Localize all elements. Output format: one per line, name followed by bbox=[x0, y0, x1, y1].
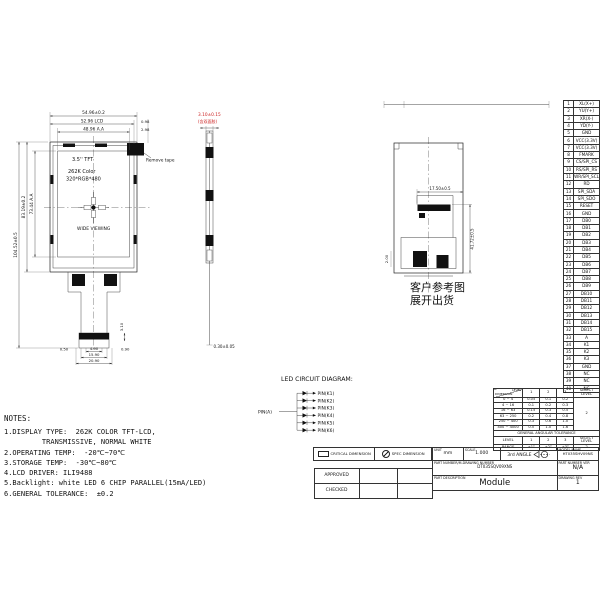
pin-number: 13 bbox=[564, 188, 574, 195]
pin-row: 22DB5 bbox=[564, 254, 600, 261]
viewing-direction-label: WIDE VIEWING bbox=[77, 226, 111, 232]
model-name-cell: MODEL NAME HT035SHV09NS bbox=[557, 448, 598, 461]
spec-dimension-cell: SPEC DIMENSION bbox=[375, 448, 432, 461]
unit-cell: UNIT mm bbox=[433, 448, 464, 461]
pin-number: 25 bbox=[564, 276, 574, 283]
back-view: 17.50±0.5 41.72±0.5 2.00 客户参考图 展开出货 bbox=[384, 101, 549, 307]
approval-block: CRITICAL DIMENSION SPEC DIMENSION APPROV… bbox=[313, 447, 432, 476]
pin-signal-name: SPI_SDA bbox=[574, 188, 600, 195]
pin-number: 15 bbox=[564, 203, 574, 210]
pin-row: 13SPI_SDA bbox=[564, 188, 600, 195]
pin-number: 14 bbox=[564, 195, 574, 202]
remove-tape-label: Remove tape bbox=[146, 158, 175, 164]
angular-level-2: 2 bbox=[540, 436, 557, 445]
angular-level-3: 3 bbox=[557, 436, 574, 445]
pin-number: 32 bbox=[564, 327, 574, 334]
led-cathode-label: PIN(K1) bbox=[318, 391, 335, 397]
pin-number: 34 bbox=[564, 341, 574, 348]
spec-dimension-label: SPEC DIMENSION bbox=[392, 451, 425, 456]
pin-signal-name: DB5 bbox=[574, 254, 600, 261]
led-cathode-label: PIN(K2) bbox=[318, 398, 335, 404]
pin-row: 14SPI_SDO bbox=[564, 195, 600, 202]
dim-height-total: 104.52±0.5 bbox=[13, 232, 19, 258]
pin-number: 23 bbox=[564, 261, 574, 268]
pin-signal-name: XR(X-) bbox=[574, 115, 600, 122]
pin-signal-name: NC bbox=[574, 378, 600, 385]
pin-row: 37GND bbox=[564, 363, 600, 370]
pin-number: 9 bbox=[564, 159, 574, 166]
dim-fpc-thickness: 0.30±0.05 bbox=[214, 344, 236, 349]
pin-number: 10 bbox=[564, 166, 574, 173]
projection-label: 3rd ANGLE bbox=[507, 453, 531, 458]
model-name-label: MODEL NAME bbox=[559, 449, 582, 452]
dim-fpc-w1: 4.90 bbox=[90, 346, 99, 351]
pin-row: 19DB2 bbox=[564, 232, 600, 239]
pin-number: 5 bbox=[564, 130, 574, 137]
dim-thickness: 3.10±0.15 bbox=[198, 112, 221, 118]
level-header-1: 1 bbox=[523, 389, 540, 398]
pin-signal-name: RD bbox=[574, 181, 600, 188]
pin-number: 29 bbox=[564, 305, 574, 312]
pin-row: 18DB1 bbox=[564, 225, 600, 232]
pin-row: 15RESET bbox=[564, 203, 600, 210]
pin-row: 2YU(Y+) bbox=[564, 108, 600, 115]
pin-signal-name: A bbox=[574, 334, 600, 341]
led-cathode-label: PIN(K4) bbox=[318, 413, 335, 419]
center-mark-icon bbox=[78, 192, 109, 223]
led-cathode-label: PIN(K3) bbox=[318, 406, 335, 412]
pin-number: 7 bbox=[564, 144, 574, 151]
scale-label: SCALE bbox=[465, 449, 476, 452]
note-line: 5.Backlight: white LED 6 CHIP PARALLEL(1… bbox=[4, 478, 206, 488]
dim-height-aa: 73.44 A.A bbox=[29, 194, 35, 215]
tolerance-corner-cell: LEVEL DIMENSION bbox=[494, 389, 523, 398]
pin-signal-name: CS/SPI_CS bbox=[574, 159, 600, 166]
pin-number: 28 bbox=[564, 298, 574, 305]
pin-row: 24DB7 bbox=[564, 268, 600, 275]
checked-date-cell[interactable] bbox=[397, 484, 432, 499]
pin-table: 1XL(X+)2YU(Y+)3XR(X-)4YD(Y-)5GND6VCC(3.3… bbox=[563, 100, 600, 393]
approved-label: APPROVED bbox=[314, 469, 359, 484]
pin-number: 12 bbox=[564, 181, 574, 188]
approved-date-cell[interactable] bbox=[397, 469, 432, 484]
pin-signal-name: YU(Y+) bbox=[574, 108, 600, 115]
pin-row: 29DB12 bbox=[564, 305, 600, 312]
pin-row: 23DB6 bbox=[564, 261, 600, 268]
unit-label: UNIT bbox=[434, 449, 442, 452]
pin-number: 16 bbox=[564, 210, 574, 217]
pin-row: 5GND bbox=[564, 130, 600, 137]
pin-signal-name: DB10 bbox=[574, 290, 600, 297]
pin-signal-name: DB14 bbox=[574, 319, 600, 326]
part-number-label: PART NUMBER/M-DRAWING NUMBER bbox=[434, 462, 494, 465]
pin-number: 35 bbox=[564, 349, 574, 356]
pin-number: 4 bbox=[564, 122, 574, 129]
dim-width-outline: 54.96±0.2 bbox=[82, 110, 105, 116]
pin-row: 7VCC(3.3V) bbox=[564, 144, 600, 151]
pin-signal-name: DB12 bbox=[574, 305, 600, 312]
pin-signal-name: DB15 bbox=[574, 327, 600, 334]
pin-number: 31 bbox=[564, 319, 574, 326]
pin-number: 2 bbox=[564, 108, 574, 115]
pin-signal-name: RESET bbox=[574, 203, 600, 210]
pin-number: 33 bbox=[564, 334, 574, 341]
pin-row: 38NC bbox=[564, 370, 600, 377]
pin-signal-name: NC bbox=[574, 370, 600, 377]
pin-signal-name: SPI_SDO bbox=[574, 195, 600, 202]
pin-signal-name: FMARK bbox=[574, 152, 600, 159]
dim-back-height: 41.72±0.5 bbox=[470, 228, 475, 250]
pin-signal-name: DB13 bbox=[574, 312, 600, 319]
select-level-label: SELECT LEVEL bbox=[574, 389, 600, 398]
angular-select-label: SELECT LEVEL bbox=[574, 436, 600, 445]
pin-row: 9CS/SPI_CS bbox=[564, 159, 600, 166]
pin-number: 20 bbox=[564, 239, 574, 246]
pin-signal-name: VCC(3.3V) bbox=[574, 144, 600, 151]
part-description-value: Module bbox=[479, 478, 510, 488]
pin-row: 39NC bbox=[564, 378, 600, 385]
pin-signal-name: GND bbox=[574, 130, 600, 137]
dim-back-small: 2.00 bbox=[384, 254, 389, 263]
panel-color-label: 262K Color bbox=[68, 169, 96, 175]
selected-level-value: 2 bbox=[574, 397, 600, 431]
pin-row: 17DB0 bbox=[564, 217, 600, 224]
part-ver-cell: PART NUMBER VER N/A bbox=[557, 461, 598, 476]
pin-signal-name: DB7 bbox=[574, 268, 600, 275]
part-ver-label: PART NUMBER VER bbox=[559, 462, 590, 465]
projection-cell: 3rd ANGLE bbox=[500, 448, 557, 461]
pin-signal-name: YD(Y-) bbox=[574, 122, 600, 129]
pin-row: 26DB9 bbox=[564, 283, 600, 290]
pin-row: 28DB11 bbox=[564, 298, 600, 305]
pin-signal-name: DB3 bbox=[574, 239, 600, 246]
pin-row: 25DB8 bbox=[564, 276, 600, 283]
drawing-canvas: Remove tape 3.5'' TFT 262K Color 320*RGB… bbox=[0, 0, 600, 600]
pin-number: 37 bbox=[564, 363, 574, 370]
pin-row: 33A bbox=[564, 334, 600, 341]
note-line: 6.GENERAL TOLERANCE: ±0.2 bbox=[4, 489, 206, 499]
pin-row: 20DB3 bbox=[564, 239, 600, 246]
note-line: 2.OPERATING TEMP: -20℃~70℃ bbox=[4, 448, 206, 458]
led-anode-label: PIN(A) bbox=[258, 410, 272, 416]
customer-reference-caption-1: 客户参考图 bbox=[410, 280, 465, 294]
dim-fpc-left: 0.50 bbox=[60, 347, 69, 352]
dim-fpc-w3: 20.90 bbox=[89, 358, 100, 363]
critical-dimension-label: CRITICAL DIMENSION bbox=[331, 451, 371, 456]
pin-signal-name: DB11 bbox=[574, 298, 600, 305]
dim-fpc-right: 0.90 bbox=[121, 347, 130, 352]
third-angle-projection-icon bbox=[533, 450, 550, 459]
dim-thickness-note: (含双面胶) bbox=[198, 118, 218, 124]
dim-connector: 17.50±0.5 bbox=[429, 186, 451, 191]
pin-number: 18 bbox=[564, 225, 574, 232]
pin-row: 6VCC(3.3V) bbox=[564, 137, 600, 144]
level-header-3: 3 bbox=[557, 389, 574, 398]
corner-level-label: LEVEL bbox=[512, 389, 521, 392]
pin-signal-name: DB4 bbox=[574, 246, 600, 253]
pin-row: 3XR(X-) bbox=[564, 115, 600, 122]
pin-row: 30DB13 bbox=[564, 312, 600, 319]
angular-level-label: LEVEL bbox=[494, 436, 523, 445]
dim-fpc-w2: 15.90 bbox=[89, 352, 100, 357]
pin-row: 27DB10 bbox=[564, 290, 600, 297]
title-block: UNIT mm SCALE 1.000 3rd ANGLE MODEL bbox=[432, 447, 599, 491]
dim-right-1: 0.98 bbox=[141, 119, 150, 124]
pin-number: 8 bbox=[564, 152, 574, 159]
pin-signal-name: DB2 bbox=[574, 232, 600, 239]
model-name-value: HT035SHV09NS bbox=[563, 451, 593, 456]
angular-level-1: 1 bbox=[523, 436, 540, 445]
dim-height-outline: 83.19±0.2 bbox=[21, 195, 27, 218]
pin-number: 27 bbox=[564, 290, 574, 297]
pin-number: 36 bbox=[564, 356, 574, 363]
drawing-rev-cell: DRAWING REV 1 bbox=[557, 476, 598, 491]
pin-signal-name: K2 bbox=[574, 349, 600, 356]
note-line: TRANSMISSIVE, NORMAL WHITE bbox=[4, 437, 206, 447]
pin-number: 22 bbox=[564, 254, 574, 261]
pin-number: 17 bbox=[564, 217, 574, 224]
pin-table-body: 1XL(X+)2YU(Y+)3XR(X-)4YD(Y-)5GND6VCC(3.3… bbox=[564, 101, 600, 393]
pin-row: 31DB14 bbox=[564, 319, 600, 326]
drawing-rev-label: DRAWING REV bbox=[559, 477, 583, 480]
pin-signal-name: GND bbox=[574, 363, 600, 370]
note-line: 3.STORAGE TEMP: -30℃~80℃ bbox=[4, 458, 206, 468]
pin-row: 1XL(X+) bbox=[564, 101, 600, 108]
pin-signal-name: DB9 bbox=[574, 283, 600, 290]
pin-signal-name: VCC(3.3V) bbox=[574, 137, 600, 144]
unit-value: mm bbox=[444, 451, 453, 456]
part-description-cell: PART DESCRIPTION Module bbox=[433, 476, 558, 491]
pin-number: 39 bbox=[564, 378, 574, 385]
note-line: 4.LCD DRIVER: ILI9488 bbox=[4, 468, 206, 478]
level-header-2: 2 bbox=[540, 389, 557, 398]
pin-number: 21 bbox=[564, 246, 574, 253]
led-cathode-label: PIN(K5) bbox=[318, 421, 335, 427]
note-line: 1.DISPLAY TYPE: 262K COLOR TFT-LCD, bbox=[4, 427, 206, 437]
pin-row: 11WR/SPI_SCL bbox=[564, 173, 600, 180]
dim-right-2: 2.98 bbox=[141, 127, 150, 132]
part-description-label: PART DESCRIPTION bbox=[434, 477, 465, 480]
pin-row: 34K1 bbox=[564, 341, 600, 348]
checked-signature-cell[interactable] bbox=[359, 484, 397, 499]
customer-reference-caption-2: 展开出货 bbox=[410, 293, 454, 307]
pin-number: 30 bbox=[564, 312, 574, 319]
critical-dimension-icon bbox=[318, 451, 329, 457]
led-diagram-title: LED CIRCUIT DIAGRAM: bbox=[281, 376, 353, 383]
pin-number: 38 bbox=[564, 370, 574, 377]
pin-signal-name: DB1 bbox=[574, 225, 600, 232]
dim-width-aa: 48.96 A.A bbox=[83, 127, 104, 133]
pin-signal-name: K3 bbox=[574, 356, 600, 363]
pin-row: 4YD(Y-) bbox=[564, 122, 600, 129]
corner-dimension-label: DIMENSION bbox=[495, 393, 512, 396]
pin-number: 26 bbox=[564, 283, 574, 290]
pin-signal-name: DB0 bbox=[574, 217, 600, 224]
pin-row: 12RD bbox=[564, 181, 600, 188]
pin-number: 6 bbox=[564, 137, 574, 144]
pin-row: 21DB4 bbox=[564, 246, 600, 253]
pin-row: 32DB15 bbox=[564, 327, 600, 334]
pin-row: 16GND bbox=[564, 210, 600, 217]
panel-size-label: 3.5'' TFT bbox=[72, 157, 94, 163]
drawing-rev-value: 1 bbox=[576, 479, 580, 486]
notes-block: NOTES: 1.DISPLAY TYPE: 262K COLOR TFT-LC… bbox=[4, 414, 206, 499]
pin-number: 11 bbox=[564, 173, 574, 180]
pin-signal-name: RS/SPI_RS bbox=[574, 166, 600, 173]
front-view: Remove tape 3.5'' TFT 262K Color 320*RGB… bbox=[13, 110, 175, 365]
pin-signal-name: K1 bbox=[574, 341, 600, 348]
part-number-value: DT035SQV09XNS bbox=[477, 464, 512, 469]
pin-row: 10RS/SPI_RS bbox=[564, 166, 600, 173]
approved-signature-cell[interactable] bbox=[359, 469, 397, 484]
part-ver-value: N/A bbox=[572, 464, 583, 471]
pin-signal-name: DB6 bbox=[574, 261, 600, 268]
pin-row: 35K2 bbox=[564, 349, 600, 356]
pin-signal-name: WR/SPI_SCL bbox=[574, 173, 600, 180]
led-circuit-diagram: LED CIRCUIT DIAGRAM: PIN(A) PIN(K1)PIN(K… bbox=[258, 376, 353, 434]
dim-width-lcd: 52.96 LCD bbox=[81, 119, 104, 125]
notes-lines: 1.DISPLAY TYPE: 262K COLOR TFT-LCD, TRAN… bbox=[4, 427, 206, 499]
pin-number: 1 bbox=[564, 101, 574, 108]
scale-cell: SCALE 1.000 bbox=[463, 448, 500, 461]
pin-number: 19 bbox=[564, 232, 574, 239]
pin-signal-name: XL(X+) bbox=[574, 101, 600, 108]
critical-dimension-cell: CRITICAL DIMENSION bbox=[314, 448, 375, 461]
pin-signal-name: DB8 bbox=[574, 276, 600, 283]
dim-fpc-h: 3.10 bbox=[119, 322, 124, 331]
tolerance-table: LEVEL DIMENSION 1 2 3 SELECT LEVEL 0 ~ 4… bbox=[493, 388, 600, 451]
led-cathode-label: PIN(K6) bbox=[318, 428, 335, 434]
pin-row: 36K3 bbox=[564, 356, 600, 363]
drawing-sheet: Remove tape 3.5'' TFT 262K Color 320*RGB… bbox=[0, 0, 600, 600]
pin-number: 24 bbox=[564, 268, 574, 275]
part-number-cell: PART NUMBER/M-DRAWING NUMBER DT035SQV09X… bbox=[433, 461, 558, 476]
pin-signal-name: GND bbox=[574, 210, 600, 217]
panel-resolution-label: 320*RGB*480 bbox=[66, 177, 101, 183]
led-branches: PIN(K1)PIN(K2)PIN(K3)PIN(K4)PIN(K5)PIN(K… bbox=[297, 391, 334, 434]
spec-dimension-icon bbox=[382, 450, 390, 458]
scale-value: 1.000 bbox=[475, 451, 488, 456]
pin-row: 8FMARK bbox=[564, 152, 600, 159]
side-view: 3.10±0.15 (含双面胶) 0.30±0.05 bbox=[198, 112, 235, 349]
notes-title: NOTES: bbox=[4, 414, 206, 423]
pin-number: 3 bbox=[564, 115, 574, 122]
checked-label: CHECKED bbox=[314, 484, 359, 499]
